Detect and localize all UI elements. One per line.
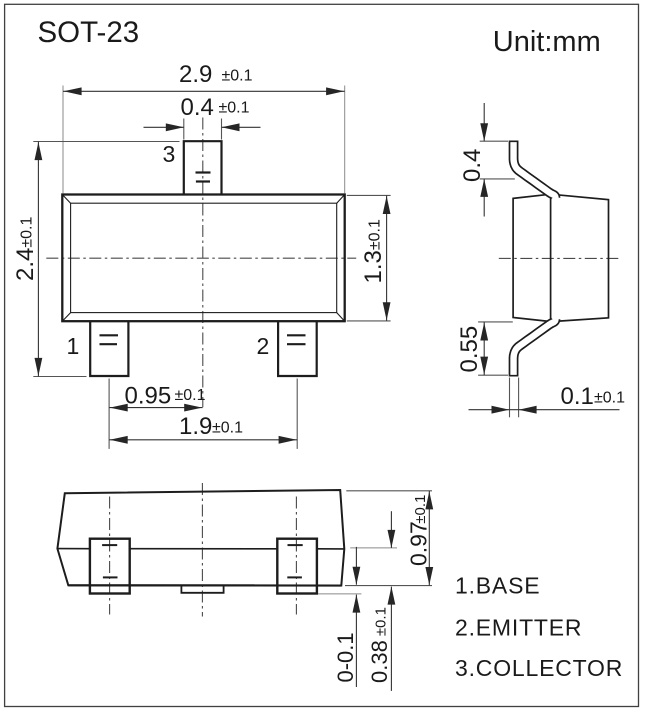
svg-text:±0.1: ±0.1: [212, 420, 243, 437]
svg-text:0.1: 0.1: [561, 383, 594, 410]
svg-text:Unit:mm: Unit:mm: [493, 26, 601, 58]
svg-text:0.55: 0.55: [456, 326, 483, 373]
svg-text:3.COLLECTOR: 3.COLLECTOR: [455, 655, 623, 681]
svg-text:3: 3: [163, 141, 176, 167]
svg-text:±0.1: ±0.1: [594, 390, 625, 407]
svg-text:0.95: 0.95: [125, 383, 172, 410]
svg-text:2: 2: [257, 333, 270, 359]
svg-text:±0.1: ±0.1: [222, 68, 253, 85]
svg-text:2.9: 2.9: [179, 61, 212, 88]
svg-text:±0.1: ±0.1: [175, 387, 206, 404]
svg-text:0.4: 0.4: [459, 149, 486, 182]
svg-text:1.9: 1.9: [179, 413, 212, 440]
svg-text:1.BASE: 1.BASE: [455, 573, 540, 599]
svg-text:2.EMITTER: 2.EMITTER: [455, 615, 582, 641]
svg-text:SOT-23: SOT-23: [38, 16, 140, 49]
svg-text:±0.1: ±0.1: [219, 100, 250, 117]
svg-text:0.4: 0.4: [181, 94, 214, 121]
svg-text:0-0.1: 0-0.1: [333, 632, 358, 682]
svg-text:1: 1: [67, 333, 80, 359]
